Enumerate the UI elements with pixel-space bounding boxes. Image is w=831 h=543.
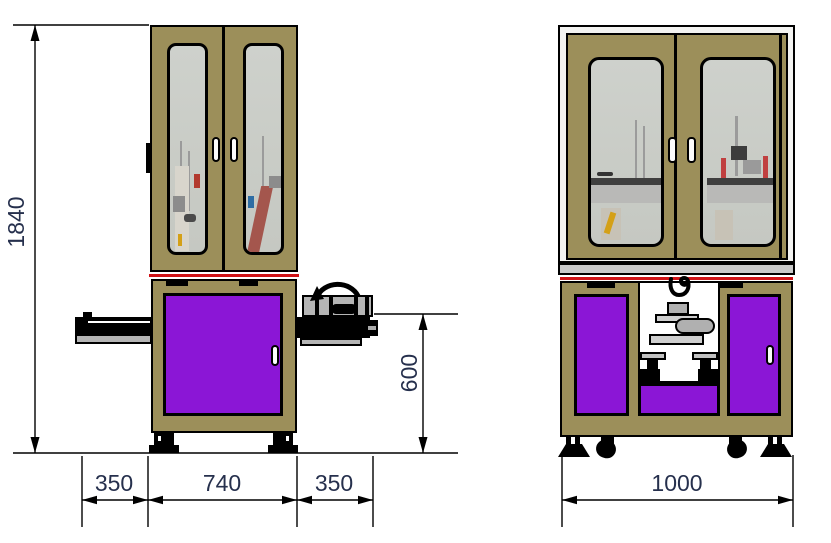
dimension-label-work-height: 600	[397, 333, 423, 413]
technical-drawing-canvas: 1840 600 350 740 350 1000	[0, 0, 831, 543]
rotation-arrow-icon	[310, 284, 358, 301]
dimension-label-side-width: 1000	[637, 471, 717, 495]
dimension-label-front-left: 350	[84, 471, 144, 495]
dimension-lines	[13, 25, 793, 527]
caster-wheel-icons	[594, 437, 750, 461]
dimension-label-front-right: 350	[304, 471, 364, 495]
drawing-overlay	[0, 0, 831, 543]
fixture-bracket-icon	[641, 353, 717, 381]
dimension-label-height: 1840	[4, 172, 30, 272]
crane-hook-icon	[670, 278, 688, 295]
side-leveling-feet	[558, 437, 792, 457]
front-leveling-feet	[149, 433, 298, 453]
dimension-label-front-width: 740	[192, 471, 252, 495]
